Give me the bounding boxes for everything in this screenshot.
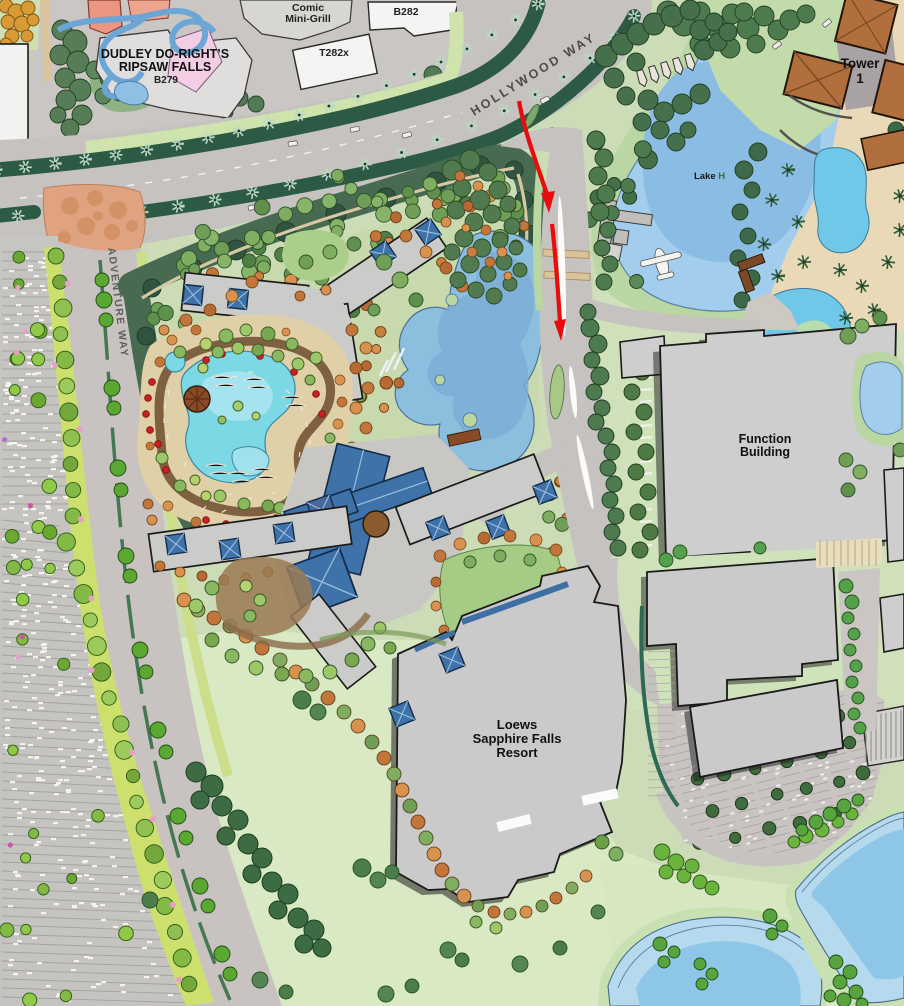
svg-text:Lake H: Lake H bbox=[694, 171, 725, 182]
svg-text:B279: B279 bbox=[154, 75, 178, 86]
svg-text:1: 1 bbox=[856, 71, 864, 86]
svg-text:DUDLEY DO-RIGHT’S: DUDLEY DO-RIGHT’S bbox=[101, 47, 229, 61]
svg-text:Loews: Loews bbox=[497, 717, 537, 732]
svg-text:Sapphire Falls: Sapphire Falls bbox=[473, 731, 562, 746]
svg-text:Mini-Grill: Mini-Grill bbox=[285, 13, 331, 25]
svg-text:Building: Building bbox=[740, 445, 790, 459]
svg-text:B282: B282 bbox=[393, 6, 418, 18]
svg-text:Resort: Resort bbox=[496, 745, 538, 760]
svg-text:Function: Function bbox=[739, 432, 792, 446]
svg-text:Tower: Tower bbox=[841, 56, 880, 71]
svg-text:RIPSAW FALLS: RIPSAW FALLS bbox=[119, 60, 211, 74]
svg-text:T282x: T282x bbox=[319, 47, 349, 59]
